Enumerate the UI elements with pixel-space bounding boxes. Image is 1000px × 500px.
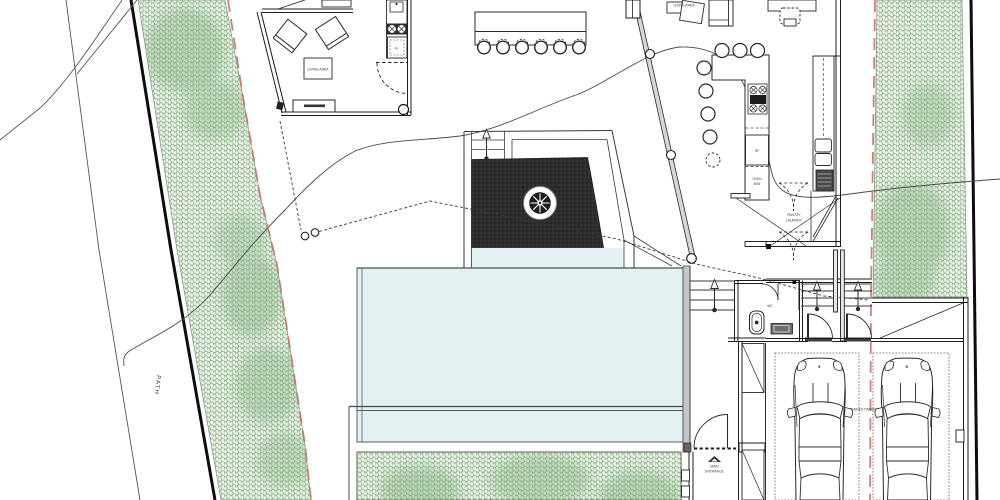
svg-text:LIVING AREA: LIVING AREA (307, 68, 329, 72)
svg-text:PANTRY: PANTRY (787, 213, 801, 217)
svg-text:RF: RF (755, 149, 759, 153)
svg-text:MAIN: MAIN (710, 465, 719, 469)
svg-text:LIVING AREA: LIVING AREA (673, 4, 695, 8)
svg-text:OVEN: OVEN (752, 177, 762, 181)
svg-text:LAUNDRY: LAUNDRY (786, 219, 803, 223)
svg-text:M/W: M/W (754, 182, 761, 186)
svg-text:WC: WC (767, 304, 773, 308)
svg-text:RF: RF (395, 47, 399, 51)
svg-text:ENTRANCE: ENTRANCE (705, 470, 724, 474)
